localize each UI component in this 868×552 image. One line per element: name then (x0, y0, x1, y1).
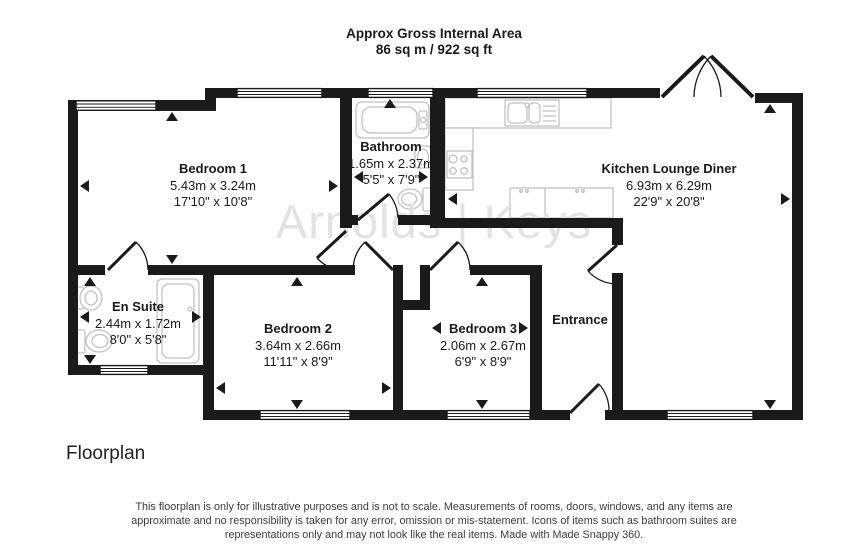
bathroom-dimension-arrows (354, 99, 428, 183)
door-front-entrance (570, 384, 609, 413)
floorplan-page: Approx Gross Internal Area 86 sq m / 922… (0, 0, 868, 552)
header-area-value: 86 sq m / 922 sq ft (0, 42, 868, 58)
floorplan-caption: Floorplan (66, 443, 145, 465)
gross-internal-area-header: Approx Gross Internal Area 86 sq m / 922… (0, 26, 868, 58)
door-bedroom2 (353, 242, 393, 270)
floorplan-drawing (0, 0, 868, 552)
french-doors (662, 56, 753, 97)
bedroom1-dimension-arrows (80, 112, 338, 264)
ensuite-dimension-arrows (80, 277, 201, 364)
disclaimer-text: This floorplan is only for illustrative … (112, 500, 757, 542)
bedroom2-dimension-arrows (216, 277, 391, 409)
door-bedroom3 (430, 242, 470, 270)
header-title: Approx Gross Internal Area (0, 26, 868, 42)
door-bathroom (358, 194, 398, 220)
bedroom3-dimension-arrows (432, 277, 528, 409)
walls (68, 88, 803, 420)
door-ensuite (108, 242, 148, 270)
